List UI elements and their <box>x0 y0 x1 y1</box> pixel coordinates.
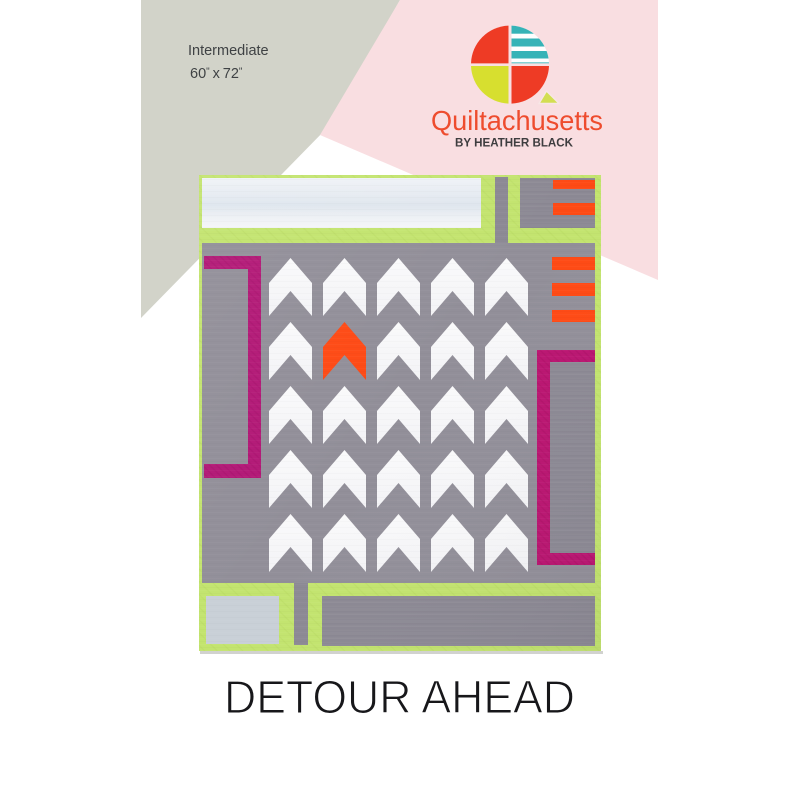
svg-text:Intermediate: Intermediate <box>188 43 269 59</box>
svg-text:BY HEATHER BLACK: BY HEATHER BLACK <box>455 138 574 150</box>
svg-text:Quiltachusetts: Quiltachusetts <box>431 105 603 136</box>
svg-text:60" x 72": 60" x 72" <box>190 66 243 82</box>
svg-text:DETOUR AHEAD: DETOUR AHEAD <box>224 671 575 723</box>
